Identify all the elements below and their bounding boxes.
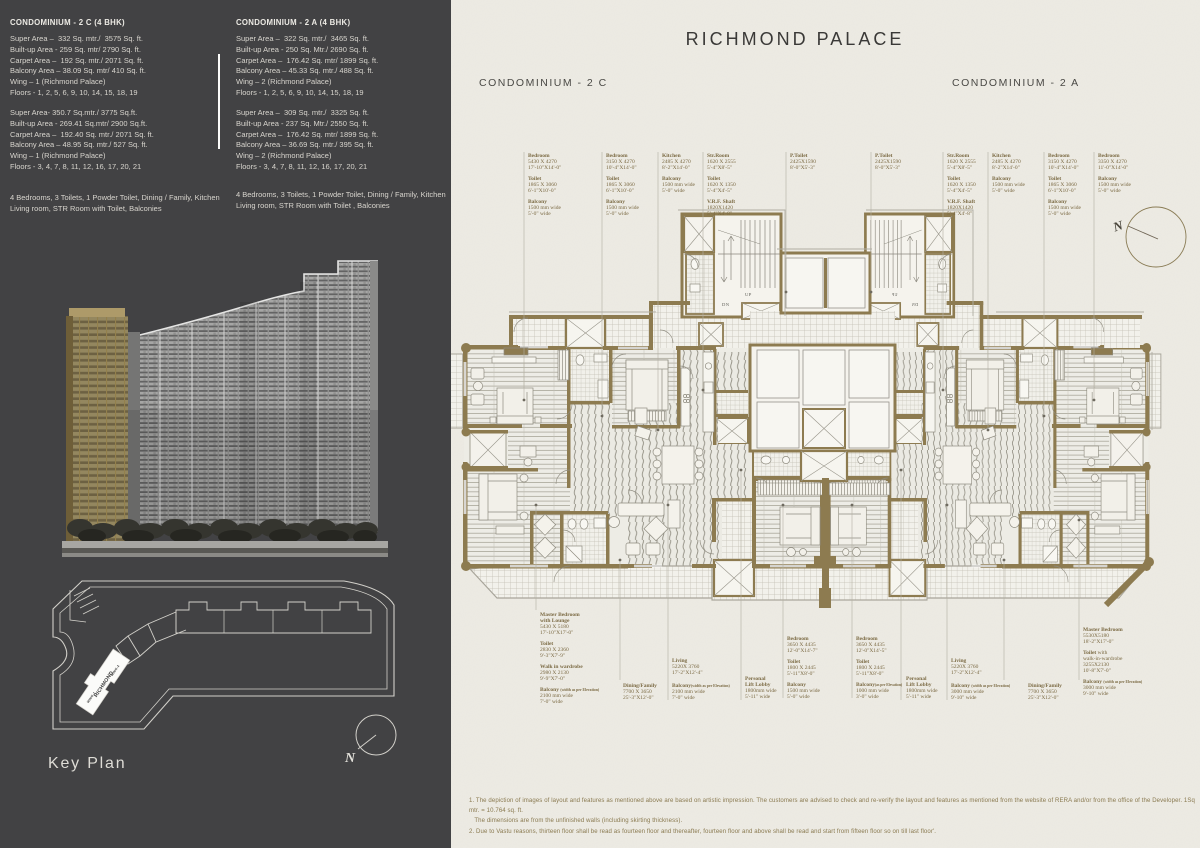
svg-text:5'-11"X8'-0": 5'-11"X8'-0" <box>787 671 815 677</box>
svg-text:5'-0" wide: 5'-0" wide <box>787 694 810 700</box>
svg-text:10'-4"X14'-0": 10'-4"X14'-0" <box>606 165 637 171</box>
svg-text:5'-4"X4'-5": 5'-4"X4'-5" <box>707 188 732 194</box>
svg-text:DN: DN <box>722 302 730 307</box>
svg-text:8'-0"X5'-3": 8'-0"X5'-3" <box>790 165 815 171</box>
svg-text:5'-11"X8'-0": 5'-11"X8'-0" <box>856 671 884 677</box>
svg-text:10'-8"X7'-0": 10'-8"X7'-0" <box>1083 668 1111 674</box>
svg-text:5'-4"X4'-8": 5'-4"X4'-8" <box>707 211 732 217</box>
svg-text:7'-0" wide: 7'-0" wide <box>672 695 695 701</box>
svg-text:9'-10" wide: 9'-10" wide <box>951 695 977 701</box>
svg-text:5'-4"X8'-5": 5'-4"X8'-5" <box>707 165 732 171</box>
svg-text:9'-10" wide: 9'-10" wide <box>1083 691 1109 697</box>
svg-text:17'-10"X14'-0": 17'-10"X14'-0" <box>528 165 561 171</box>
svg-text:12'-0"X14'-7": 12'-0"X14'-7" <box>787 648 818 654</box>
svg-text:5'-0" wide: 5'-0" wide <box>992 188 1015 194</box>
svg-text:5'-0" wide: 5'-0" wide <box>606 211 629 217</box>
svg-text:5'-0" wide: 5'-0" wide <box>662 188 685 194</box>
svg-text:17'-2"X12'-4": 17'-2"X12'-4" <box>672 670 703 676</box>
svg-text:6'-1"X10'-0": 6'-1"X10'-0" <box>1048 188 1076 194</box>
svg-text:5'-0" wide: 5'-0" wide <box>1098 188 1121 194</box>
svg-text:6'-1"X10'-0": 6'-1"X10'-0" <box>606 188 634 194</box>
svg-text:UP: UP <box>745 292 752 297</box>
svg-text:7'-0" wide: 7'-0" wide <box>540 699 563 705</box>
svg-text:5'-11" wide: 5'-11" wide <box>745 694 771 700</box>
svg-text:9'-9"X7'-0": 9'-9"X7'-0" <box>540 676 565 682</box>
svg-text:8'-2"X14'-0": 8'-2"X14'-0" <box>992 165 1020 171</box>
svg-text:5'-0" wide: 5'-0" wide <box>1048 211 1071 217</box>
svg-text:25'-3"X12'-0": 25'-3"X12'-0" <box>1028 695 1059 701</box>
svg-text:10'-4"X14'-0": 10'-4"X14'-0" <box>1048 165 1079 171</box>
svg-text:25'-3"X12'-0": 25'-3"X12'-0" <box>623 695 654 701</box>
svg-text:8'-2"X14'-0": 8'-2"X14'-0" <box>662 165 690 171</box>
svg-text:N: N <box>344 751 356 766</box>
svg-text:17'-10"X17'-0": 17'-10"X17'-0" <box>540 630 573 636</box>
svg-text:12'-0"X14'-5": 12'-0"X14'-5" <box>856 648 887 654</box>
svg-text:N: N <box>1110 217 1125 235</box>
svg-text:6'-1"X10'-0": 6'-1"X10'-0" <box>528 188 556 194</box>
svg-text:5'-4"X4'-5": 5'-4"X4'-5" <box>947 188 972 194</box>
svg-text:9'-3"X7'-9": 9'-3"X7'-9" <box>540 653 565 659</box>
svg-text:5'-4"X4'-8": 5'-4"X4'-8" <box>947 211 972 217</box>
svg-text:3'-0" wide: 3'-0" wide <box>856 694 879 700</box>
svg-text:18'-2"X17'-0": 18'-2"X17'-0" <box>1083 639 1114 645</box>
svg-text:8'-0"X5'-3": 8'-0"X5'-3" <box>875 165 900 171</box>
svg-text:17'-2"X12'-4": 17'-2"X12'-4" <box>951 670 982 676</box>
svg-text:5'-11" wide: 5'-11" wide <box>906 694 932 700</box>
svg-text:5'-4"X8'-5": 5'-4"X8'-5" <box>947 165 972 171</box>
svg-text:11'-0"X14'-0": 11'-0"X14'-0" <box>1098 165 1128 171</box>
svg-text:5'-0" wide: 5'-0" wide <box>528 211 551 217</box>
